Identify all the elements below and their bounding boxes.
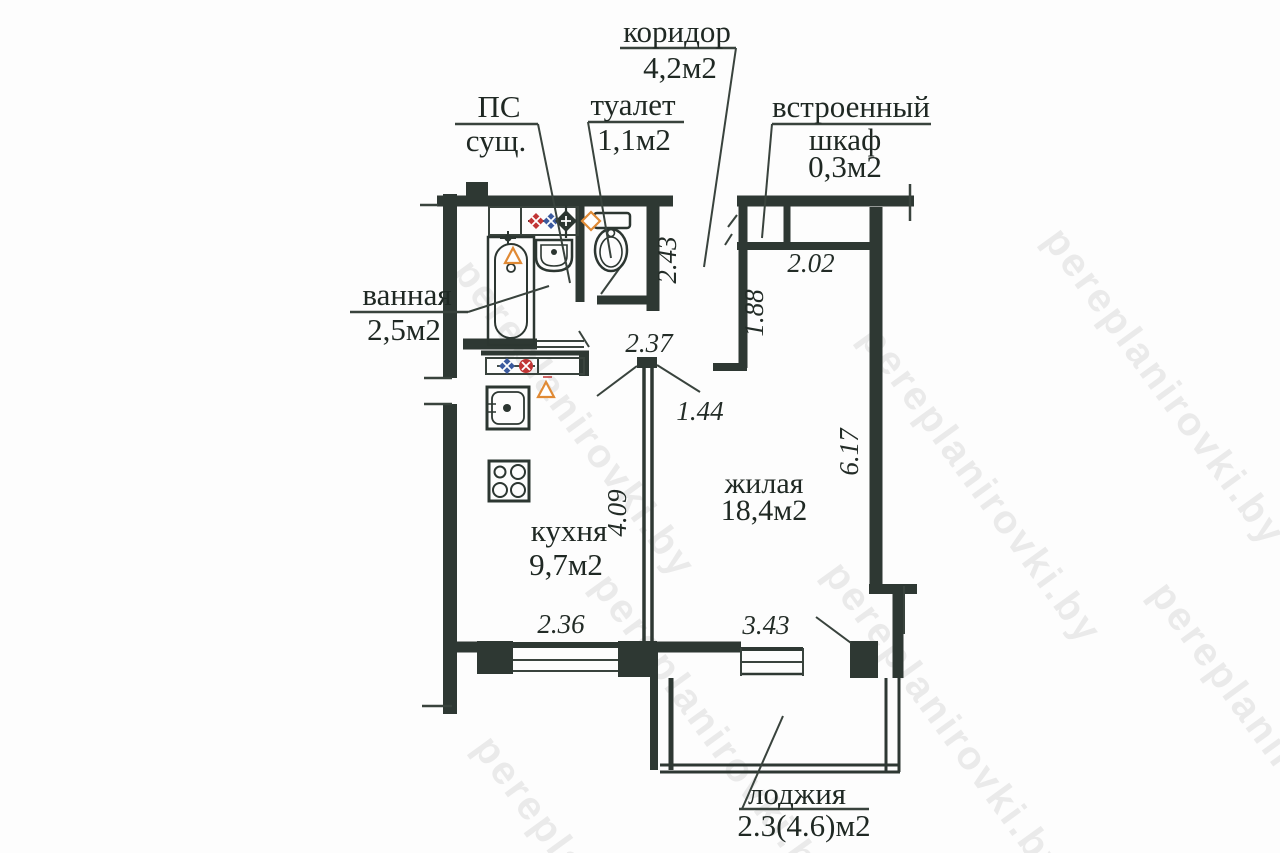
dim-living-width: 3.43 <box>741 610 789 640</box>
label-kitchen: кухня <box>531 513 607 548</box>
entrance-door-dash <box>725 234 732 245</box>
label-toilet: туалет <box>590 87 675 122</box>
valve-panel-bathroom <box>528 205 577 238</box>
stove-icon <box>489 461 529 501</box>
label-ps-note: сущ. <box>466 123 526 158</box>
label-loggia: лоджия <box>748 776 846 811</box>
dim-opening-width: 1.44 <box>676 396 723 426</box>
label-toilet-area: 1,1м2 <box>597 122 671 157</box>
dim-living-height: 6.17 <box>834 427 864 476</box>
kitchen-sink-icon <box>487 387 529 429</box>
label-living-area: 18,4м2 <box>721 494 807 527</box>
label-closet-area: 0,3м2 <box>808 149 882 184</box>
dim-nook-width: 2.02 <box>787 248 834 278</box>
label-corridor: коридор <box>623 14 731 49</box>
label-kitchen-area: 9,7м2 <box>529 547 603 582</box>
label-bathroom: ванная <box>362 277 451 312</box>
floor-plan-page: pereplanirovki.by pereplanirovki.by pere… <box>0 0 1280 853</box>
label-bathroom-area: 2,5м2 <box>367 312 441 347</box>
vent-triangle-icon <box>505 248 521 263</box>
dim-nook-height: 1.88 <box>739 289 769 337</box>
entrance-door-dash <box>728 215 737 227</box>
watermark-text: pereplanirovki.by <box>1141 573 1280 853</box>
dim-hall-width: 2.37 <box>625 328 674 358</box>
watermark-text: pereplanirovki.by <box>1035 219 1280 554</box>
label-closet: встроенный <box>772 89 930 124</box>
dim-kitchen-width: 2.36 <box>537 609 585 639</box>
dim-kitchen-height: 4.09 <box>602 489 632 537</box>
label-corridor-area: 4,2м2 <box>643 50 717 85</box>
dim-corridor-length: 2.43 <box>652 236 682 283</box>
label-ps: ПС <box>477 89 520 124</box>
label-loggia-area: 2.3(4.6)м2 <box>737 808 870 843</box>
watermark-text: pereplanirovki.by <box>465 727 725 853</box>
watermark-text: pereplanirovki.by <box>851 317 1111 652</box>
